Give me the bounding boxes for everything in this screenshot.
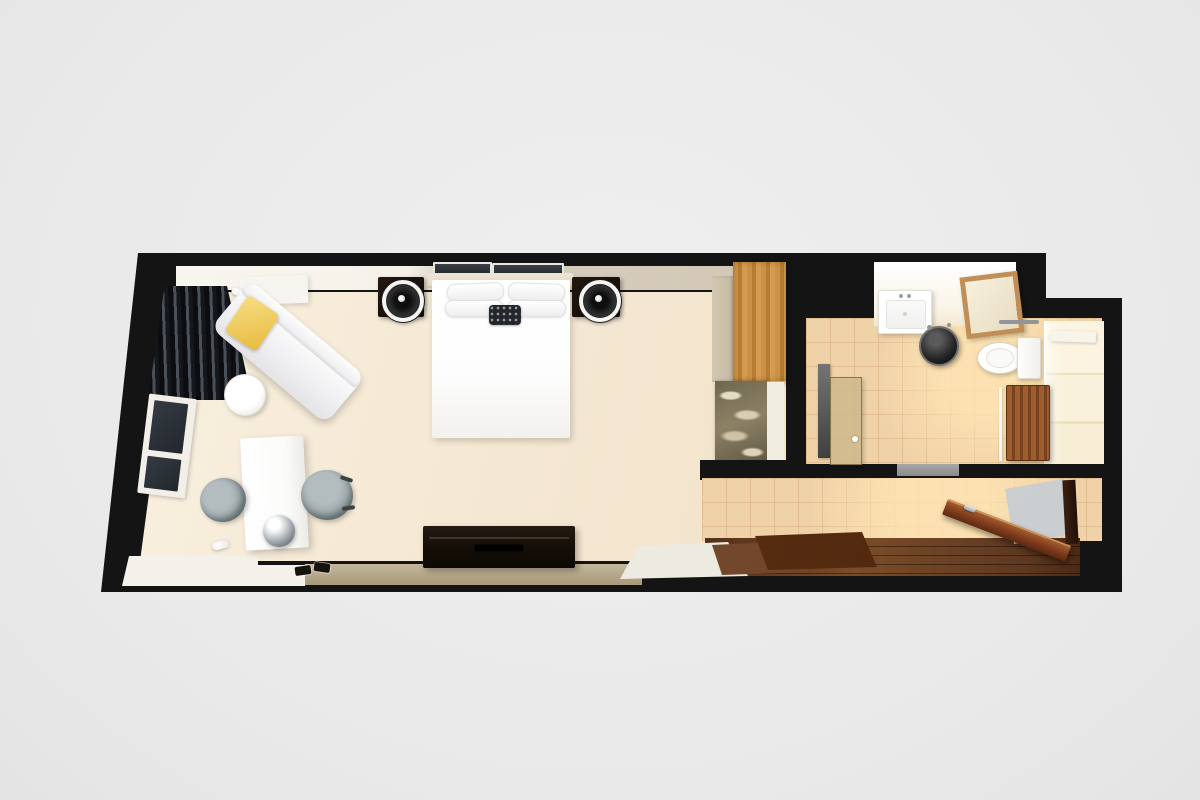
toiletry-item [947, 323, 951, 327]
tv-console-slot [475, 545, 524, 551]
floor-plan-canvas [0, 0, 1200, 800]
table-lamp-right [579, 280, 621, 322]
toilet-seat [986, 348, 1014, 368]
wardrobe-side-panel [712, 276, 734, 382]
stool [919, 326, 959, 366]
window-glass-pane [148, 400, 188, 454]
sink-drain [903, 312, 907, 316]
kettle [263, 515, 295, 547]
bathroom-door [830, 377, 862, 465]
toiletry-item [927, 325, 932, 330]
towel-bar [999, 320, 1039, 324]
side-table [224, 374, 266, 416]
faucet-handle [899, 294, 903, 298]
slippers [295, 562, 335, 582]
vanity-sink [878, 290, 932, 334]
glass-panel-dark [818, 364, 830, 458]
toilet-tank [1017, 337, 1041, 379]
tv-console-edge [429, 537, 569, 539]
nook-side-panel [767, 382, 784, 462]
shower-sill [897, 464, 959, 476]
bed-pillow [508, 282, 566, 302]
window-glass-pane [144, 456, 182, 492]
bed-pillow [447, 282, 505, 302]
slipper [313, 562, 330, 573]
minibar-marble-counter [715, 381, 767, 462]
wardrobe-door [733, 262, 786, 381]
shower-wall [1044, 321, 1104, 464]
tv-console [423, 526, 575, 568]
table-lamp-left [382, 280, 424, 322]
slipper [294, 565, 311, 576]
faucet-handle [907, 294, 911, 298]
mirror [959, 271, 1024, 340]
teak-bench [1006, 385, 1050, 461]
door-handle [852, 436, 858, 442]
bath-shelf [1050, 330, 1096, 343]
nook-bottom-wall [700, 460, 792, 480]
accent-pillow [489, 305, 521, 325]
glass-partition [999, 387, 1002, 461]
